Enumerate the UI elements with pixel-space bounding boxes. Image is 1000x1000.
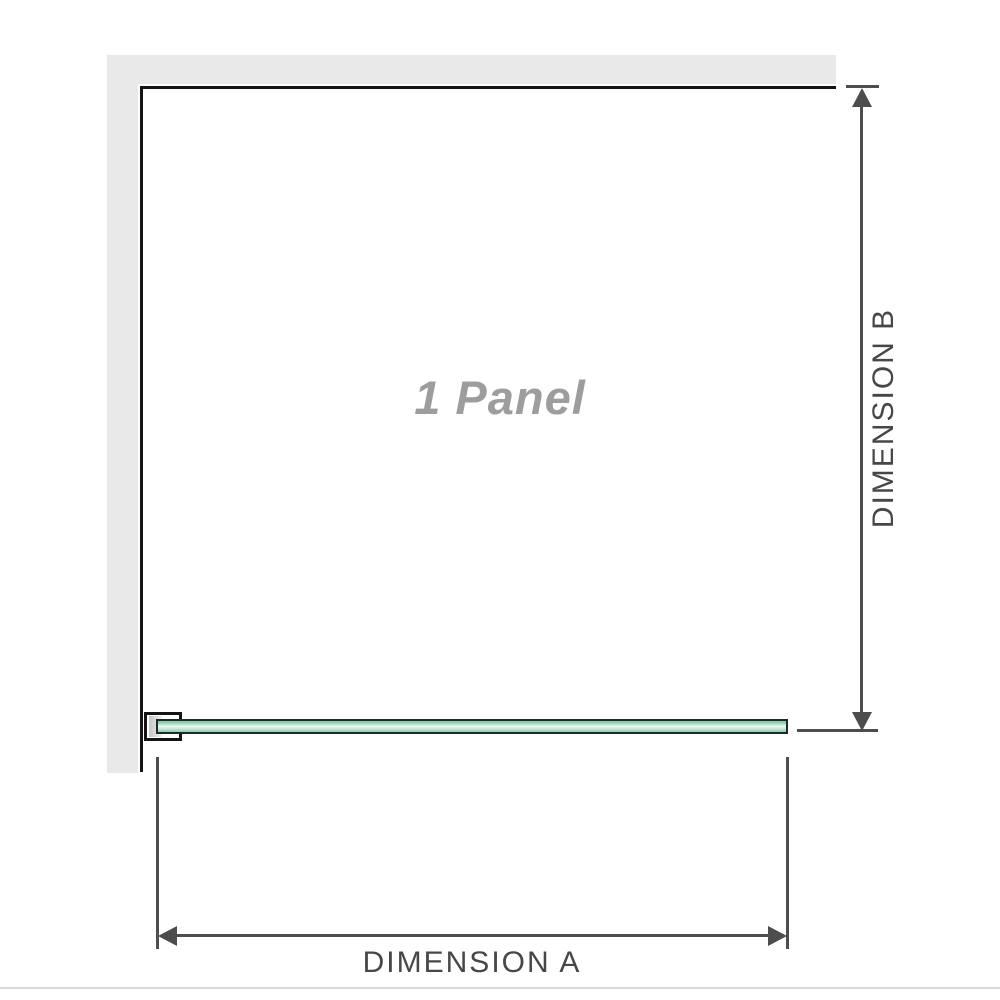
enclosure-top-line [140, 86, 836, 89]
arrow-down-icon [852, 712, 872, 731]
bottom-divider [0, 987, 1000, 989]
dimension-a-extension-right [786, 757, 789, 949]
enclosure-left-line [140, 86, 143, 772]
dimension-b-label: DIMENSION B [864, 268, 904, 568]
arrow-up-icon [852, 88, 872, 107]
arrow-right-icon [768, 926, 787, 946]
dimension-b-line [860, 92, 863, 726]
panel-count-label: 1 Panel [350, 368, 650, 428]
wall-left [107, 55, 138, 773]
arrow-left-icon [158, 926, 177, 946]
glass-panel [156, 719, 788, 734]
shower-screen-diagram: 1 Panel DIMENSION B DIMENSION A [0, 0, 1000, 1000]
dimension-a-extension-left [156, 757, 159, 949]
dimension-a-label: DIMENSION A [272, 944, 672, 982]
dimension-a-line [162, 934, 784, 937]
wall-top [107, 55, 836, 84]
